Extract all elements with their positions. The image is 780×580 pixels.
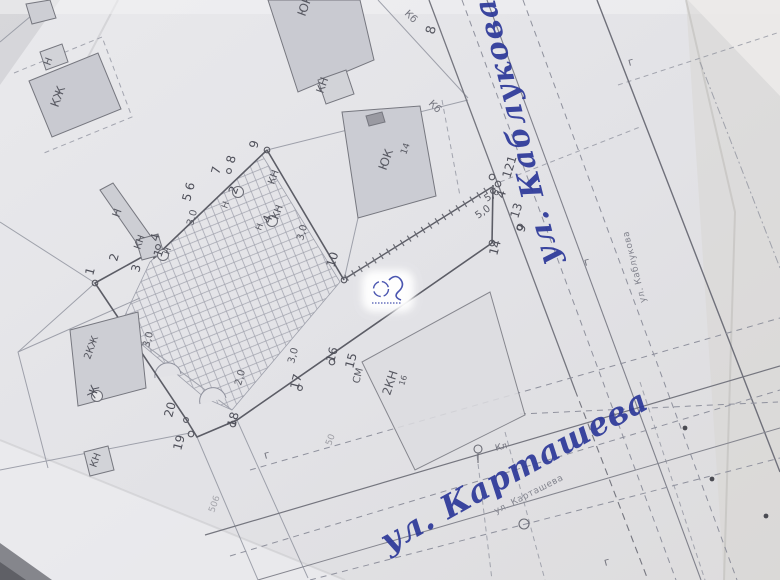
point-dot	[764, 514, 769, 519]
point-dot	[683, 426, 688, 431]
watermark-logo	[362, 270, 414, 312]
plan-canvas: 1 2 4 Ж 1 2 3 4 5 6 7 8 9 10 14 15 16 17…	[0, 0, 780, 580]
point-dot	[710, 477, 715, 482]
cadastral-plan-photo: 1 2 4 Ж 1 2 3 4 5 6 7 8 9 10 14 15 16 17…	[0, 0, 780, 580]
